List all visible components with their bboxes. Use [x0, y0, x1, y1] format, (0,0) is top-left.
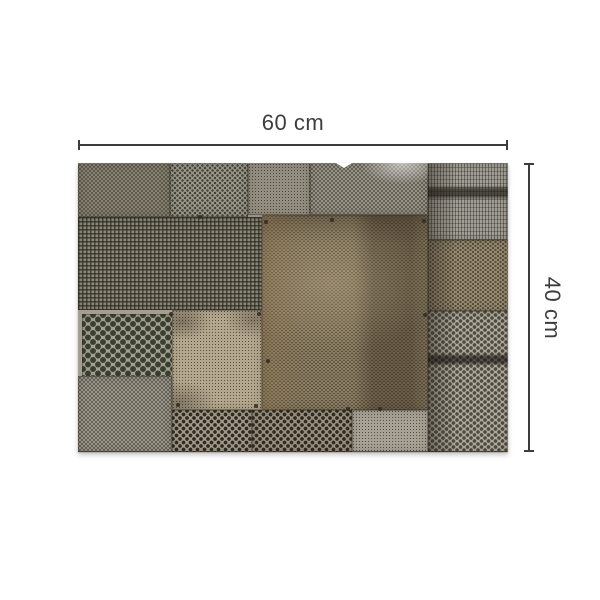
metal-panel-top-left	[78, 163, 170, 217]
metal-panel-right-bigdots	[428, 311, 508, 452]
rust-stain	[262, 215, 428, 410]
bolt	[378, 407, 382, 411]
height-dimension-line	[528, 163, 530, 452]
bolt	[264, 220, 268, 224]
panel-shading	[428, 163, 454, 240]
bolt	[198, 215, 202, 219]
metal-strip-dots-2	[252, 410, 352, 452]
metal-panel-right-hex	[428, 240, 508, 311]
product-dimension-figure: 60 cm 40 cm	[0, 0, 600, 600]
bolt	[423, 313, 427, 317]
metal-strip-fine	[352, 410, 428, 452]
bolt	[176, 403, 180, 407]
bolt	[254, 404, 258, 408]
bolt	[346, 407, 350, 411]
metal-panel-center	[262, 215, 428, 410]
light-flare	[310, 163, 428, 215]
bolt	[330, 218, 334, 222]
bolt	[257, 312, 261, 316]
panel-shading	[428, 240, 454, 311]
metal-panel-bottom-left	[78, 376, 172, 452]
width-dimension-line	[78, 144, 508, 146]
metal-panel-beige	[172, 310, 262, 410]
metal-panel-right-top	[428, 163, 508, 240]
metal-panel-top-right	[310, 163, 428, 215]
product-photo	[78, 163, 508, 452]
metal-panel-woven-mesh	[78, 217, 262, 310]
bolt	[266, 359, 270, 363]
bolt	[169, 312, 173, 316]
dark-weld-band	[428, 185, 508, 200]
metal-panel-large-holes	[78, 310, 180, 384]
height-dimension-label: 40 cm	[539, 276, 565, 338]
corner-stains	[172, 310, 262, 410]
metal-panel-top-roundholes	[170, 163, 248, 217]
width-dimension-label: 60 cm	[78, 110, 508, 136]
panel-shading	[428, 311, 454, 452]
bolt	[422, 219, 426, 223]
metal-panel-top-fine	[248, 163, 310, 215]
metal-strip-dots-1	[172, 410, 252, 452]
height-dimension-label-wrap: 40 cm	[534, 163, 570, 452]
dark-weld-band	[428, 353, 508, 366]
